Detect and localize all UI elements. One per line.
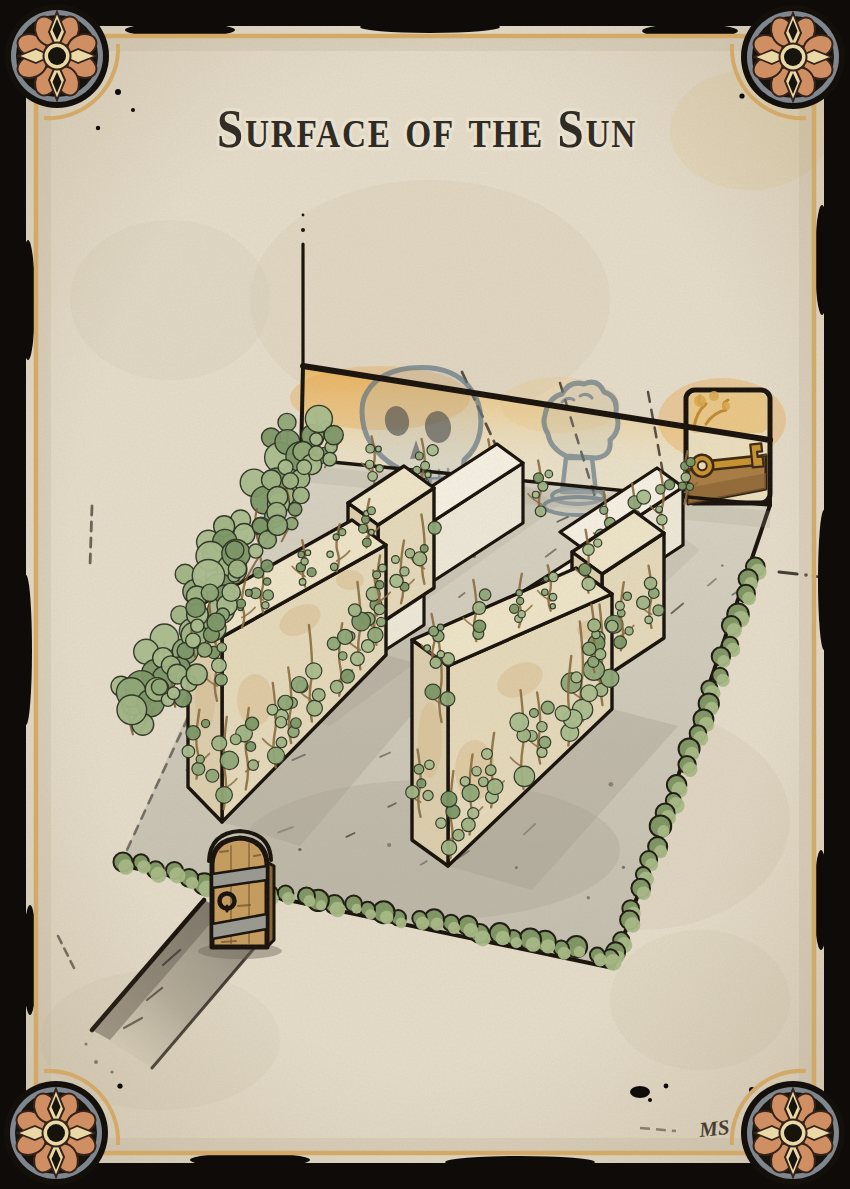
rosette-icon-bottom-left (4, 1081, 108, 1185)
rosette-icon-bottom-right (741, 1081, 845, 1185)
vignette (20, 20, 830, 1169)
map-card: Surface of the Sun Surface of the Sun MS (0, 0, 850, 1189)
map-card-canvas: Surface of the Sun Surface of the Sun MS (0, 0, 850, 1189)
rosette-icon-top-right (741, 5, 845, 109)
rosette-icon-top-left (5, 4, 109, 108)
